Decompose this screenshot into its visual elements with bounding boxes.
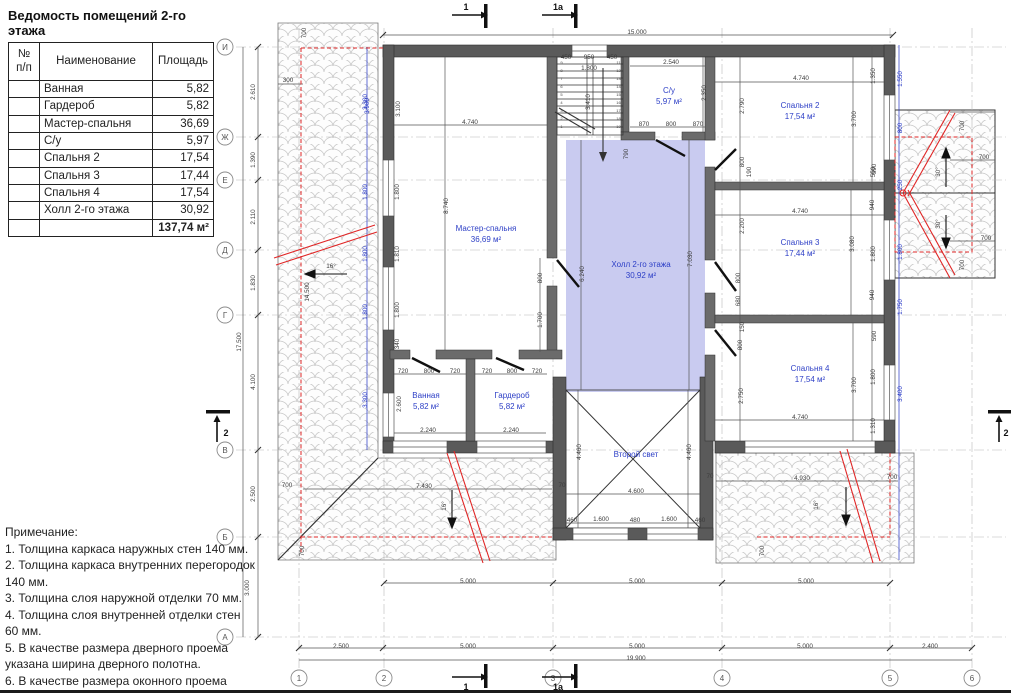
room-area-bath: 5,82 м² — [413, 402, 439, 411]
dim-label: 30° — [934, 167, 942, 177]
cell-name: Гардероб — [40, 98, 153, 115]
table-row: Холл 2-го этажа30,92 — [9, 202, 214, 219]
cell-name: Ванная — [40, 80, 153, 97]
dim-label: 1.600 — [593, 516, 609, 523]
cell-name: Мастер-спальня — [40, 115, 153, 132]
dim-label: 680 — [735, 295, 742, 306]
cell-no — [9, 132, 40, 149]
dim-label: 1.800 — [870, 246, 877, 262]
window — [477, 441, 546, 453]
cell-no — [9, 115, 40, 132]
dim-label: 5.000 — [629, 643, 645, 650]
room-label-second-light: Второй свет — [614, 450, 659, 459]
section-marker-2-right: 2 — [988, 410, 1011, 442]
note-item: 4. Толщина слоя внутренней отделки стен … — [5, 607, 255, 640]
cell-no — [9, 202, 40, 219]
dim-label: 2.500 — [250, 486, 257, 502]
dim-label: 5.000 — [798, 578, 814, 585]
dim-label: 700 — [282, 482, 293, 489]
axis-label-Г: Г — [223, 311, 228, 320]
room-area-bedroom4: 17,54 м² — [795, 375, 826, 384]
axis-label-Е: Е — [222, 176, 227, 185]
dim-label: 17.500 — [236, 332, 243, 352]
stair-step-number: 5 — [560, 92, 563, 97]
dim-label: 4.930 — [794, 475, 810, 482]
stair-step-number: 1 — [560, 124, 563, 129]
room-area-wc: 5,97 м² — [656, 97, 682, 106]
dim-label: 700 — [979, 154, 990, 161]
axis-label-5: 5 — [888, 674, 893, 683]
dim-label: 1.600 — [661, 516, 677, 523]
table-row: Мастер-спальня36,69 — [9, 115, 214, 132]
stair-step-number: 14 — [616, 84, 621, 89]
dim-label: 460 — [695, 517, 706, 524]
dim-label: 8.740 — [443, 198, 450, 214]
dim-label: 4.600 — [628, 488, 644, 495]
dim-label: 1.830 — [250, 275, 257, 291]
dim-label: 2.400 — [922, 643, 938, 650]
cell-no — [9, 150, 40, 167]
door-bedroom2 — [715, 149, 736, 170]
dim-label: 2.350 — [701, 85, 708, 101]
dim-label: 2.110 — [250, 209, 257, 225]
room-area-bedroom2: 17,54 м² — [785, 112, 816, 121]
dim-label: 190 — [746, 166, 753, 177]
dim-label: 2.200 — [739, 218, 746, 234]
window — [383, 393, 394, 437]
svg-text:1: 1 — [463, 2, 468, 12]
dim-label: 4.740 — [792, 208, 808, 215]
dim-label: 5.000 — [797, 643, 813, 650]
dim-label: 4.460 — [576, 444, 583, 460]
floor-plan-sheet: ИЖЕДГВБА123456 — [0, 0, 1011, 693]
room-label-master: Мастер-спальня — [456, 224, 517, 233]
stair-step-number: 12 — [616, 68, 621, 73]
schedule-title: Ведомость помещений 2-го этажа — [8, 8, 218, 38]
dim-label: 4.100 — [250, 374, 257, 390]
dim-label: 2.790 — [739, 98, 746, 114]
room-label-bedroom3: Спальня 3 — [781, 238, 820, 247]
dim-label: 70 — [706, 473, 714, 480]
axis-label-Д: Д — [222, 246, 228, 255]
dim-label: 1.800 — [870, 369, 877, 385]
dim-label: 800 — [739, 156, 746, 167]
cell-no — [9, 185, 40, 202]
stair-step-number: 19 — [616, 124, 621, 129]
room-label-wc: С/у — [663, 86, 675, 95]
window — [647, 528, 698, 540]
dim-label: 2.750 — [738, 388, 745, 404]
table-row: Спальня 417,54 — [9, 185, 214, 202]
door-bedroom3 — [715, 262, 736, 291]
note-item: 3. Толщина слоя наружной отделки 70 мм. — [5, 590, 255, 607]
dim-label: 700 — [959, 259, 966, 270]
cell-area: 30,92 — [153, 202, 214, 219]
dim-label: 700 — [959, 120, 966, 131]
cell-no — [9, 167, 40, 184]
window — [573, 528, 628, 540]
cell-name: Холл 2-го этажа — [40, 202, 153, 219]
window — [393, 441, 447, 453]
dim-label: 720 — [450, 368, 461, 375]
dim-label: 800 — [424, 368, 435, 375]
dim-label: 1.550 — [897, 71, 904, 87]
axis-label-2: 2 — [382, 674, 387, 683]
dim-label: 3.300 — [362, 94, 369, 110]
room-area-bedroom3: 17,44 м² — [785, 249, 816, 258]
dim-label: 450 — [561, 54, 572, 61]
svg-text:2: 2 — [223, 428, 228, 438]
dim-label: 700 — [759, 545, 766, 556]
dim-label: 6.240 — [579, 266, 586, 282]
dim-label: 16° — [440, 501, 448, 511]
table-row: Спальня 317,44 — [9, 167, 214, 184]
room-area-hall: 30,92 м² — [626, 271, 657, 280]
cell-area: 17,44 — [153, 167, 214, 184]
dim-label: 1.800 — [394, 302, 401, 318]
dim-label: 250 — [897, 179, 904, 190]
svg-text:1a: 1a — [553, 2, 564, 12]
cell-area: 5,82 — [153, 98, 214, 115]
window — [884, 365, 895, 420]
cell-name: С/у — [40, 132, 153, 149]
dim-label: 1.390 — [250, 152, 257, 168]
cell-name: Спальня 2 — [40, 150, 153, 167]
cell-area: 17,54 — [153, 185, 214, 202]
axis-label-Ж: Ж — [221, 133, 229, 142]
dim-label: 800 — [897, 122, 904, 133]
room-label-bedroom4: Спальня 4 — [791, 364, 830, 373]
door-bedroom4 — [715, 330, 736, 356]
dim-label: 1.700 — [537, 312, 544, 328]
dim-label: 2.610 — [250, 84, 257, 100]
dim-label: 70 — [558, 482, 566, 489]
room-area-wardrobe: 5,82 м² — [499, 402, 525, 411]
dim-label: 5.000 — [460, 643, 476, 650]
dim-label: 950 — [584, 54, 595, 61]
dim-label: 800 — [737, 339, 744, 350]
dim-label: 3.410 — [585, 94, 592, 110]
dim-label: 720 — [482, 368, 493, 375]
dim-label: 16° — [812, 500, 820, 510]
dim-label: 4.460 — [686, 444, 693, 460]
dim-label: 800 — [735, 272, 742, 283]
dim-label: 14.500 — [304, 282, 311, 302]
window — [383, 267, 394, 330]
dim-label: 15.000 — [627, 29, 647, 36]
note-item: 5. В качестве размера дверного проема ук… — [5, 640, 255, 673]
cell-name: Спальня 3 — [40, 167, 153, 184]
section-marker-1-bottom: 1 — [452, 664, 488, 692]
dim-label: 450 — [607, 54, 618, 61]
dim-label: 2.240 — [503, 427, 519, 434]
note-item: 1. Толщина каркаса наружных стен 140 мм. — [5, 541, 255, 558]
dim-label: 5.000 — [460, 578, 476, 585]
dim-label: 19.900 — [626, 655, 646, 662]
dim-label: 1.350 — [870, 68, 877, 84]
room-schedule-table: № п/п Наименование Площадь Ванная5,82Гар… — [8, 42, 214, 237]
dim-label: 340 — [394, 338, 401, 349]
dim-label: 5.000 — [629, 578, 645, 585]
dim-label: 870 — [639, 121, 650, 128]
dim-label: 4.740 — [462, 119, 478, 126]
dim-label: 7.030 — [687, 251, 694, 267]
dim-label: 150 — [739, 321, 746, 332]
axis-label-6: 6 — [970, 674, 975, 683]
dim-label: 2.540 — [663, 59, 679, 66]
room-label-bedroom2: Спальня 2 — [781, 101, 820, 110]
dim-label: 870 — [693, 121, 704, 128]
window — [884, 220, 895, 280]
total-area: 137,74 м² — [153, 219, 214, 236]
stair-step-number: 7 — [560, 76, 563, 81]
cell-no — [9, 98, 40, 115]
window — [884, 95, 895, 160]
room-label-wardrobe: Гардероб — [494, 391, 530, 400]
dim-label: 460 — [567, 517, 578, 524]
stair-step-number: 4 — [560, 100, 563, 105]
col-header-area: Площадь — [153, 43, 214, 81]
axis-label-4: 4 — [720, 674, 725, 683]
dim-label: 4.740 — [793, 75, 809, 82]
dim-label: 1.310 — [870, 418, 877, 434]
table-row: Спальня 217,54 — [9, 150, 214, 167]
table-row: Гардероб5,82 — [9, 98, 214, 115]
dim-label: 300 — [283, 77, 294, 84]
notes-title: Примечание: — [5, 524, 255, 541]
cell-area: 17,54 — [153, 150, 214, 167]
stair-step-number: 13 — [616, 76, 621, 81]
cell-no — [9, 80, 40, 97]
section-marker-1a-top: 1a — [542, 2, 578, 28]
dim-label: 940 — [869, 199, 876, 210]
dim-label: 480 — [630, 517, 641, 524]
table-total-row: 137,74 м² — [9, 219, 214, 236]
svg-text:2: 2 — [1003, 428, 1008, 438]
dim-label: 16° — [326, 262, 336, 270]
room-label-bath: Ванная — [412, 391, 439, 400]
col-header-no: № п/п — [9, 43, 40, 81]
section-marker-2-left: 2 — [206, 410, 230, 442]
dim-label: 700 — [981, 235, 992, 242]
second-light-void — [566, 390, 700, 528]
dim-label: 720 — [398, 368, 409, 375]
section-marker-1-top: 1 — [452, 2, 488, 28]
axis-label-В: В — [222, 446, 227, 455]
dim-label: 800 — [537, 272, 544, 283]
dim-label: 1.800 — [897, 244, 904, 260]
dim-label: 2.240 — [420, 427, 436, 434]
dim-label: 3.300 — [362, 392, 369, 408]
stair-step-number: 18 — [616, 116, 621, 121]
stair-step-number: 15 — [616, 92, 621, 97]
dim-label: 940 — [869, 289, 876, 300]
cell-area: 5,97 — [153, 132, 214, 149]
dim-label: 2.600 — [396, 396, 403, 412]
table-row: Ванная5,82 — [9, 80, 214, 97]
dim-label: 30° — [934, 219, 942, 229]
dim-label: 3.080 — [849, 236, 856, 252]
dim-label: 700 — [301, 27, 308, 38]
dim-label: 590 — [871, 330, 878, 341]
dim-label: 800 — [666, 121, 677, 128]
dim-label: 700 — [887, 474, 898, 481]
dim-label: 3.400 — [897, 386, 904, 402]
dim-label: 1.800 — [362, 304, 369, 320]
room-label-hall: Холл 2-го этажа — [611, 260, 671, 269]
dim-label: 700 — [299, 545, 306, 556]
cell-area: 5,82 — [153, 80, 214, 97]
dim-label: 3.700 — [851, 377, 858, 393]
schedule-panel: Ведомость помещений 2-го этажа № п/п Наи… — [0, 0, 218, 237]
dim-label: 1.800 — [362, 246, 369, 262]
dim-label: 1.750 — [897, 299, 904, 315]
dim-label: 1.800 — [581, 65, 597, 72]
axis-label-И: И — [222, 43, 228, 52]
table-row: С/у5,97 — [9, 132, 214, 149]
col-header-name: Наименование — [40, 43, 153, 81]
window — [383, 160, 394, 216]
dim-label: 3.700 — [851, 111, 858, 127]
stair-step-number: 17 — [616, 108, 621, 113]
dim-label: 1.810 — [394, 246, 401, 262]
dim-label: 590 — [871, 163, 878, 174]
stair-step-number: 8 — [560, 68, 563, 73]
dim-label: 790 — [623, 148, 630, 159]
axis-label-1: 1 — [297, 674, 302, 683]
cell-area: 36,69 — [153, 115, 214, 132]
window — [745, 441, 875, 453]
dim-label: 1.800 — [362, 184, 369, 200]
dim-label: 800 — [507, 368, 518, 375]
dim-label: 3.100 — [395, 101, 402, 117]
dim-label: 1.800 — [394, 184, 401, 200]
dim-label: 7.430 — [416, 483, 432, 490]
notes-block: Примечание: 1. Толщина каркаса наружных … — [5, 524, 255, 693]
dim-label: 2.500 — [333, 643, 349, 650]
stair-step-number: 16 — [616, 100, 621, 105]
cell-name: Спальня 4 — [40, 185, 153, 202]
room-area-master: 36,69 м² — [471, 235, 502, 244]
dim-label: 4.740 — [792, 414, 808, 421]
dim-label: 720 — [532, 368, 543, 375]
note-item: 2. Толщина каркаса внутренних перегородо… — [5, 557, 255, 590]
